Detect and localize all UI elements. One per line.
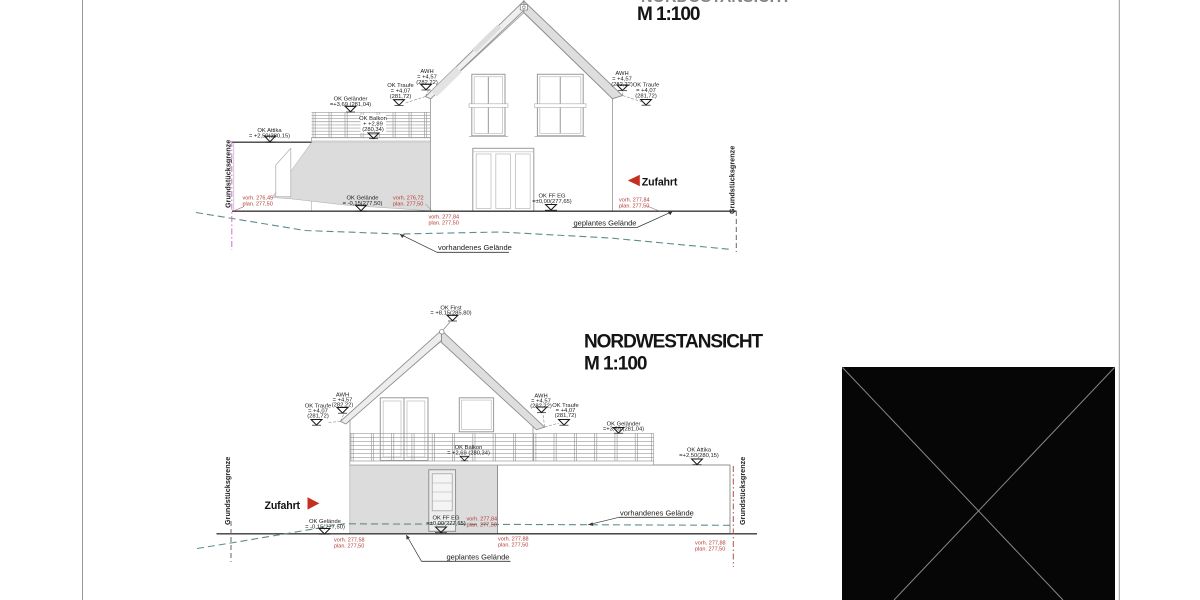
svg-text:(281,72): (281,72) (390, 94, 412, 100)
svg-text:= -0,15(277,50): = -0,15(277,50) (305, 525, 345, 531)
svg-text:Zufahrt: Zufahrt (642, 177, 678, 189)
svg-text:plan. 277,50: plan. 277,50 (429, 221, 459, 227)
svg-text:plan. 277,50: plan. 277,50 (619, 204, 649, 210)
svg-text:Grundstücksgrenze: Grundstücksgrenze (728, 146, 737, 214)
svg-text:(282,22): (282,22) (416, 80, 438, 86)
svg-text:vorhandenes Gelände: vorhandenes Gelände (620, 509, 694, 518)
svg-text:NORDWESTANSICHT: NORDWESTANSICHT (584, 332, 764, 353)
svg-text:M 1:100: M 1:100 (584, 354, 647, 375)
svg-text:Zufahrt: Zufahrt (265, 500, 301, 512)
svg-text:(281,72): (281,72) (635, 94, 657, 100)
svg-text:geplantes Gelände: geplantes Gelände (574, 219, 637, 228)
svg-text:plan. 277,50: plan. 277,50 (498, 543, 528, 549)
svg-text:plan. 277,50: plan. 277,50 (695, 547, 725, 553)
svg-text:Grundstücksgrenze: Grundstücksgrenze (224, 140, 233, 208)
svg-text:=+2,50(280,15): =+2,50(280,15) (679, 453, 719, 459)
svg-text:M 1:100: M 1:100 (637, 4, 700, 25)
svg-text:(281,72): (281,72) (307, 414, 329, 420)
svg-text:Grundstücksgrenze: Grundstücksgrenze (738, 457, 747, 525)
svg-text:Grundstücksgrenze: Grundstücksgrenze (223, 457, 232, 525)
svg-text:=+3,69 (281,04): =+3,69 (281,04) (330, 102, 371, 108)
svg-text:= -0,15(277,50): = -0,15(277,50) (343, 201, 383, 207)
svg-text:(281,72): (281,72) (555, 413, 577, 419)
svg-text:plan. 277,50: plan. 277,50 (467, 523, 497, 529)
svg-text:plan. 277,50: plan. 277,50 (393, 202, 423, 208)
svg-text:geplantes Gelände: geplantes Gelände (447, 553, 510, 562)
svg-text:(280,34): (280,34) (362, 127, 384, 133)
svg-text:vorhandenes Gelände: vorhandenes Gelände (438, 243, 512, 252)
svg-text:=±0,00(277,65): =±0,00(277,65) (426, 521, 466, 527)
svg-text:= +2,69 (280,34): = +2,69 (280,34) (447, 451, 490, 457)
svg-text:plan. 277,50: plan. 277,50 (334, 544, 364, 550)
svg-text:plan. 277,50: plan. 277,50 (243, 202, 273, 208)
